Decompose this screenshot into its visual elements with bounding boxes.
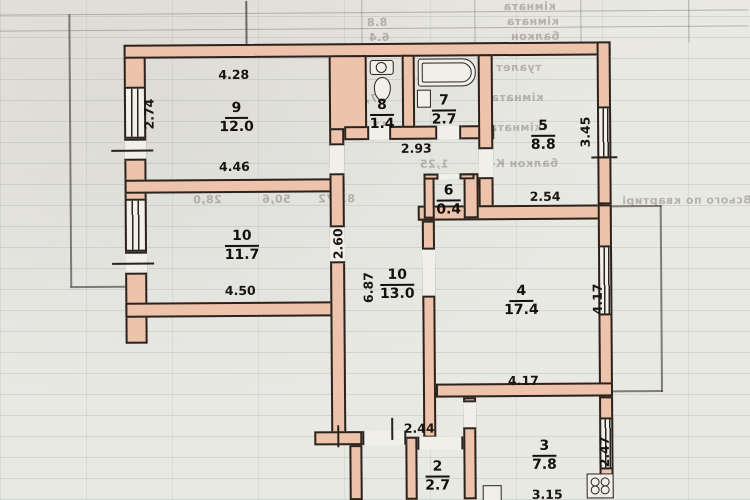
- room-label-4: 417.4: [494, 282, 548, 318]
- room-number: 2: [426, 459, 450, 477]
- room-area: 17.4: [494, 301, 548, 317]
- dim-room9-bottom: 4.46: [204, 159, 264, 174]
- sink-icon: [483, 485, 502, 500]
- bleed-text: 8.8: [366, 16, 387, 29]
- bleed-text: 28,0: [193, 193, 222, 206]
- dim-room9-top: 4.28: [204, 67, 264, 82]
- room-area: 8.8: [517, 136, 569, 152]
- dim-room9-left: 2.74: [141, 92, 156, 136]
- dimension-tick: [337, 425, 339, 447]
- room-label-3: 37.8: [519, 437, 569, 473]
- stove-icon: [587, 473, 614, 498]
- dim-room3-bottom: 3.15: [520, 487, 575, 500]
- room-number: 3: [532, 439, 556, 457]
- dim-hall-height: 6.87: [361, 265, 376, 309]
- wall-entry-left: [349, 445, 362, 500]
- dim-room5-bottom: 2.54: [518, 189, 573, 204]
- table-line: [361, 0, 362, 45]
- room-label-5: 58.8: [517, 117, 569, 153]
- room-area: 11.7: [212, 246, 272, 262]
- dim-room4-bottom: 4.17: [496, 373, 551, 388]
- dim-room2-top: 2.44: [394, 421, 444, 436]
- bleed-text: кімната: [503, 0, 556, 13]
- room-label-8: 81.4: [359, 96, 405, 132]
- room-area: 7.8: [519, 456, 569, 472]
- bleed-text: 50,6: [262, 193, 291, 206]
- room-label-6: 60.4: [426, 181, 472, 217]
- room-number: 5: [531, 119, 555, 137]
- bleed-text: кімната: [506, 15, 559, 28]
- wall-room7-room5: [478, 54, 494, 207]
- dim-room5-right: 3.45: [578, 110, 593, 154]
- room-area: 13.0: [368, 285, 426, 301]
- room-label-10: 1011.7: [212, 227, 272, 263]
- wall-room10-bottom: [125, 301, 345, 318]
- balcony-outline: [612, 205, 662, 207]
- room-label-2: 22.7: [414, 457, 460, 493]
- dimension-tick: [591, 156, 617, 158]
- wall-room9-room10: [125, 178, 345, 194]
- room-label-hall: 1013.0: [368, 266, 426, 302]
- room-label-9: 912.0: [209, 99, 264, 135]
- table-line: [688, 0, 689, 43]
- floor-plan: кімната кімната балкон 8.8 6.4 туалет кі…: [0, 0, 750, 500]
- door-opening-room2: [417, 436, 463, 449]
- room-area: 2.7: [415, 477, 461, 493]
- dim-room10-bottom: 4.50: [210, 283, 270, 298]
- dim-hall-top: 2.93: [391, 141, 441, 156]
- balcony-outline: [68, 14, 72, 287]
- dim-room4-right: 4.17: [590, 277, 605, 321]
- table-line: [580, 0, 581, 44]
- room-number: 6: [437, 183, 461, 201]
- room-area: 2.7: [421, 111, 467, 127]
- bleed-text: туалет: [496, 61, 542, 74]
- dimension-tick: [391, 418, 393, 440]
- wall-top: [124, 41, 611, 58]
- bathtub-icon: [418, 58, 476, 86]
- room-number: 9: [225, 101, 249, 119]
- room-number: 10: [380, 268, 414, 286]
- balcony-outline: [660, 205, 663, 392]
- room-area: 12.0: [209, 118, 264, 134]
- table-line: [0, 9, 748, 15]
- table-line: [474, 0, 475, 44]
- door-opening-room3: [463, 400, 476, 429]
- dimension-tick: [112, 263, 154, 265]
- window-symbol-room5: [597, 106, 611, 158]
- room-number: 8: [370, 98, 394, 116]
- window-symbol-room10: [125, 199, 147, 252]
- dim-room3-right: 2.47: [597, 430, 612, 474]
- room-number: 7: [432, 93, 456, 111]
- scanned-floor-plan: кімната кімната балкон 8.8 6.4 туалет кі…: [0, 0, 750, 500]
- dim-hall-left: 2.60: [330, 222, 345, 266]
- room-area: 1.4: [359, 115, 405, 131]
- dimension-tick: [111, 150, 153, 152]
- bleed-text: 1,25: [419, 157, 448, 170]
- room-label-7: 72.7: [421, 91, 467, 127]
- table-line: [245, 1, 247, 46]
- bleed-text: кімната: [491, 91, 544, 104]
- room-area: 0.4: [426, 201, 472, 217]
- toilet-icon: [370, 60, 394, 75]
- door-opening-room5: [478, 147, 493, 179]
- door-opening-room6: [436, 173, 461, 179]
- door-opening-room7: [435, 125, 461, 139]
- balcony-outline: [70, 286, 127, 288]
- balcony-outline: [613, 390, 663, 392]
- room-number: 10: [225, 229, 259, 247]
- room-number: 4: [509, 284, 533, 302]
- door-opening-room9: [329, 143, 344, 175]
